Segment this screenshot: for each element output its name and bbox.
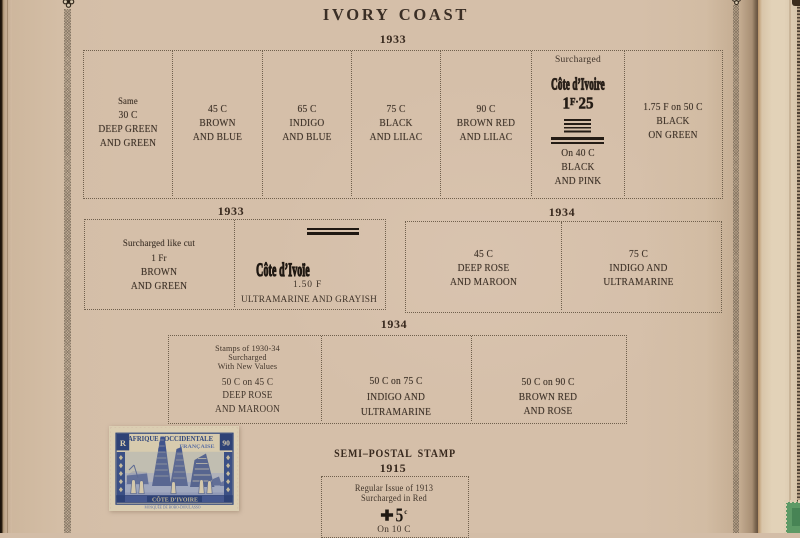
svg-text:R: R	[120, 438, 127, 448]
svg-text:AFRIQUE · OCCIDENTALE: AFRIQUE · OCCIDENTALE	[128, 434, 213, 443]
svg-text:CÔTE D’IVOIRE: CÔTE D’IVOIRE	[152, 495, 199, 503]
svg-text:FRANÇAISE: FRANÇAISE	[180, 444, 215, 450]
svg-text:c: c	[404, 508, 407, 516]
svg-text:5: 5	[396, 506, 404, 523]
svg-text:90: 90	[222, 438, 230, 447]
svg-text:MOSQUÉE DE BOBO-DIOULASSO: MOSQUÉE DE BOBO-DIOULASSO	[145, 504, 201, 509]
